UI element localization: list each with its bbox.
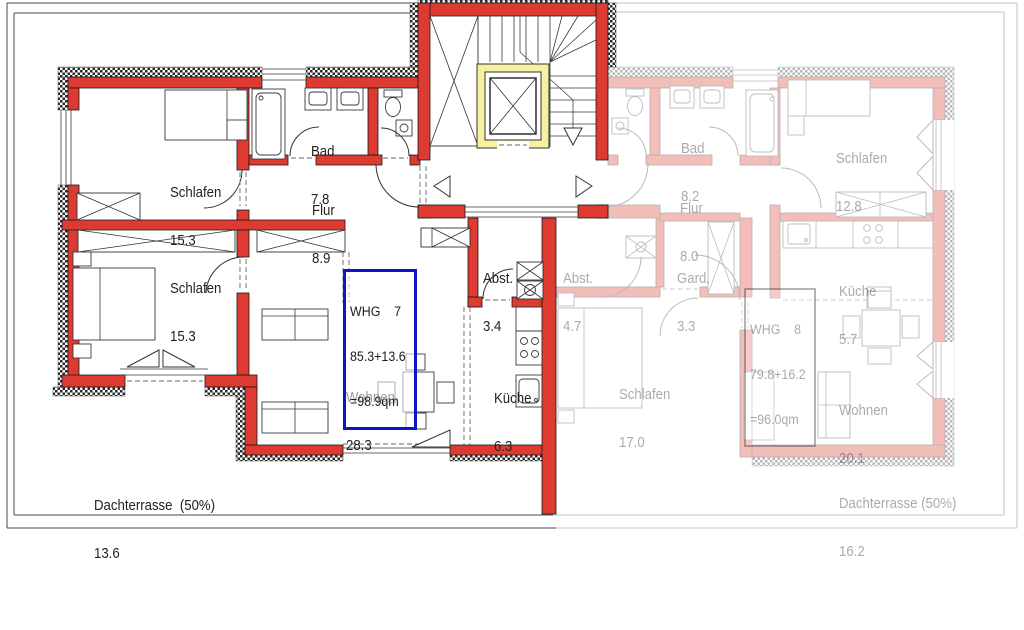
room-label-whg7-schlafen-bottom: Schlafen 15.3	[170, 249, 221, 361]
room-name: Schlafen	[619, 387, 670, 403]
room-name: Flur	[680, 201, 703, 217]
room-name: Abst.	[563, 271, 593, 287]
room-label-whg8-gard: Gard. 3.3	[677, 239, 710, 351]
unit-label-whg8: WHG 8 79.8+16.2 =96.0qm	[744, 288, 816, 447]
floor-plan-page: Schlafen 15.3 Bad 7.8 Flur 8.9 Schlafen …	[0, 0, 1024, 630]
unit-line: WHG 8	[750, 322, 806, 337]
room-label-whg7-dachterrasse: Dachterrasse (50%) 13.6	[94, 466, 215, 578]
room-area: 4.7	[563, 319, 593, 335]
room-name: Küche	[494, 391, 531, 407]
room-area: 3.4	[483, 319, 513, 335]
room-label-whg8-kueche: Küche 5.7	[839, 252, 876, 364]
room-label-whg8-abst: Abst. 4.7	[563, 239, 593, 351]
corridor-arrow-right-icon	[576, 176, 592, 197]
room-area: 15.3	[170, 329, 221, 345]
room-area: 8.9	[312, 251, 335, 267]
room-area: 17.0	[619, 435, 670, 451]
room-label-whg7-abst: Abst. 3.4	[483, 239, 513, 351]
room-name: Bad	[311, 144, 334, 160]
elevator-icon	[477, 64, 549, 149]
stair-down-arrow-icon	[564, 128, 582, 145]
room-area: 28.3	[346, 438, 395, 454]
stairwell	[430, 16, 596, 197]
unit-line: =96.0qm	[750, 412, 806, 427]
room-area: 6.3	[494, 439, 531, 455]
room-name: Schlafen	[836, 151, 887, 167]
room-area: 3.3	[677, 319, 710, 335]
room-name: Küche	[839, 284, 876, 300]
unit-line: =98.9qm	[350, 394, 406, 409]
corridor-arrow-left-icon	[434, 176, 450, 197]
room-label-whg7-flur: Flur 8.9	[312, 171, 335, 283]
room-name: Dachterrasse (50%)	[94, 498, 215, 514]
unit-line: 79.8+16.2	[750, 367, 806, 382]
room-name: Schlafen	[170, 185, 221, 201]
room-area: 16.2	[839, 544, 956, 560]
room-name: Flur	[312, 203, 335, 219]
room-label-whg8-dachterrasse: Dachterrasse (50%) 16.2	[839, 464, 956, 576]
room-name: Schlafen	[170, 281, 221, 297]
room-label-whg8-schlafen-bottom: Schlafen 17.0	[619, 355, 670, 467]
room-name: Abst.	[483, 271, 513, 287]
unit-line: 85.3+13.6	[350, 349, 406, 364]
room-name: Gard.	[677, 271, 710, 287]
unit-line: WHG 7	[350, 304, 406, 319]
room-area: 12.8	[836, 199, 887, 215]
room-label-whg7-kueche: Küche 6.3	[494, 359, 531, 471]
room-name: Dachterrasse (50%)	[839, 496, 956, 512]
room-area: 13.6	[94, 546, 215, 562]
room-name: Bad	[681, 141, 704, 157]
room-label-whg8-schlafen-top: Schlafen 12.8	[836, 119, 887, 231]
unit-label-whg7: WHG 7 85.3+13.6 =98.9qm	[343, 269, 417, 430]
room-area: 5.7	[839, 332, 876, 348]
room-area: 15.3	[170, 233, 221, 249]
room-name: Wohnen	[839, 403, 888, 419]
